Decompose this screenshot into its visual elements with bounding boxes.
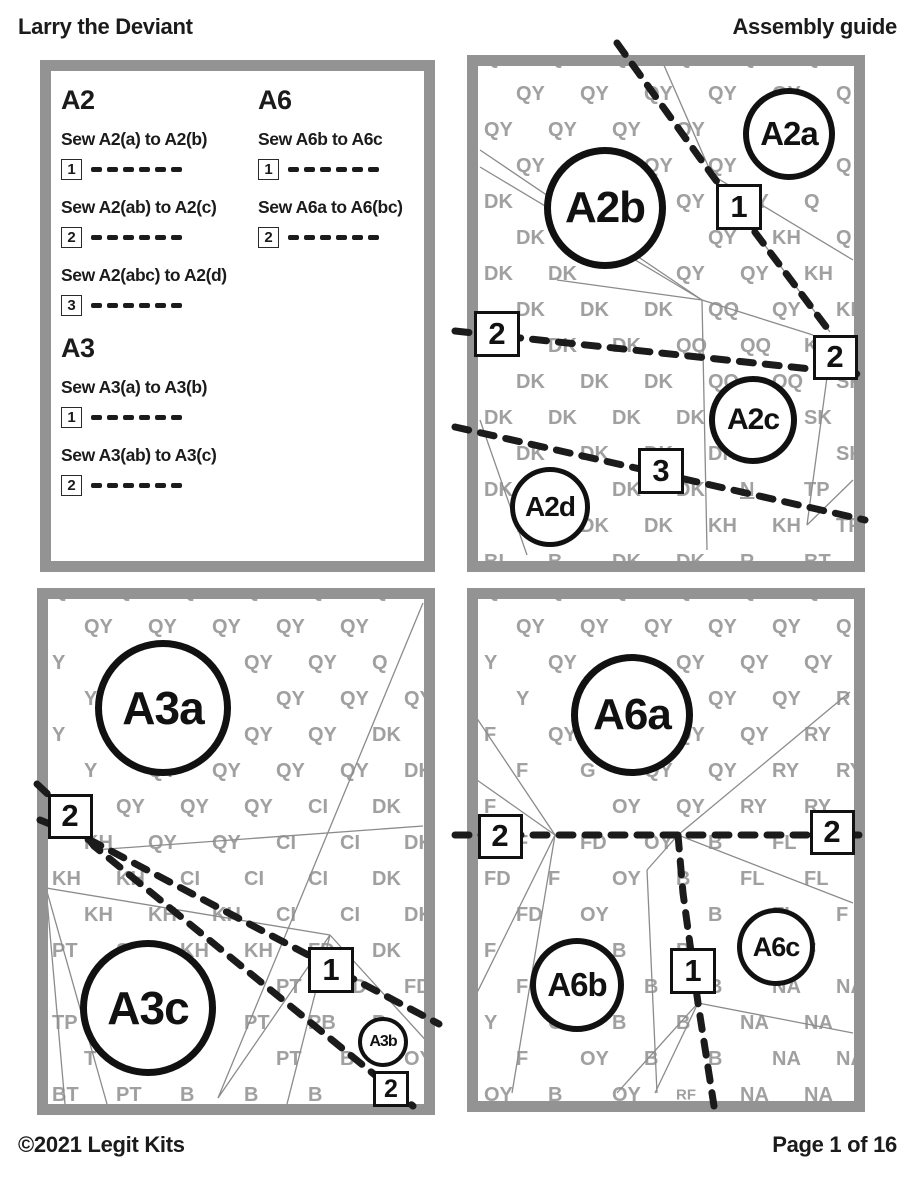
- seam-number-box-2: 2: [474, 311, 520, 357]
- piece-label-a3b: A3b: [358, 1017, 408, 1067]
- seam-number-box-2: 2: [48, 794, 93, 839]
- doc-subtitle: Assembly guide: [732, 14, 897, 40]
- step-label: Sew A6b to A6c: [258, 129, 443, 150]
- sew-line-legend: [288, 167, 379, 172]
- seam-number-box-3: 3: [638, 448, 684, 494]
- step-number-box: 2: [61, 475, 82, 496]
- piece-label-a6c: A6c: [737, 908, 815, 986]
- step-legend-row: 1: [258, 159, 443, 180]
- sew-line-legend: [91, 303, 182, 308]
- piece-label-a3c: A3c: [80, 940, 216, 1076]
- step-legend-row: 2: [61, 227, 246, 248]
- instructions-column-left: A2Sew A2(a) to A2(b)1Sew A2(ab) to A2(c)…: [61, 79, 246, 513]
- page-footer: ©2021 Legit Kits Page 1 of 16: [18, 1132, 897, 1158]
- step-legend-row: 1: [61, 159, 246, 180]
- piece-label-a3a: A3a: [95, 640, 231, 776]
- piece-label-a2a: A2a: [743, 88, 835, 180]
- diagram-panel-a3: QYQYQYQYQYQQYQYQYQYQYYQYQYQYQYQYQYQYQYYQ…: [37, 588, 435, 1115]
- piece-label-a6b: A6b: [530, 938, 624, 1032]
- diagram-labels-layer: A6aA6bA6c221: [467, 588, 843, 1090]
- section-title-a2: A2: [61, 85, 246, 116]
- sew-line-legend: [288, 235, 379, 240]
- step-legend-row: 1: [61, 407, 246, 428]
- sew-line-legend: [91, 167, 182, 172]
- step-legend-row: 3: [61, 295, 246, 316]
- piece-label-a2d: A2d: [510, 467, 590, 547]
- diagram-panel-a2: QYQYQYQYQYQQYQYQYQYQYQQYQYQYQYQQYQYQYQYQ…: [467, 55, 865, 572]
- page-header: Larry the Deviant Assembly guide: [18, 14, 897, 40]
- seam-number-box-2: 2: [478, 814, 523, 859]
- seam-number-box-2: 2: [810, 810, 855, 855]
- diagram-labels-layer: A3aA3cA3b212: [37, 588, 413, 1093]
- step-number-box: 3: [61, 295, 82, 316]
- sew-line-legend: [91, 483, 182, 488]
- step-label: Sew A3(a) to A3(b): [61, 377, 246, 398]
- section-title-a3: A3: [61, 333, 246, 364]
- instructions-column-right: A6Sew A6b to A6c1Sew A6a to A6(bc)2: [258, 79, 443, 265]
- assembly-guide-page: Larry the Deviant Assembly guide A2Sew A…: [0, 0, 917, 1178]
- seam-number-box-1: 1: [308, 947, 354, 993]
- step-number-box: 1: [258, 159, 279, 180]
- section-title-a6: A6: [258, 85, 443, 116]
- seam-number-box-1: 1: [716, 184, 762, 230]
- step-label: Sew A2(abc) to A2(d): [61, 265, 246, 286]
- step-label: Sew A2(ab) to A2(c): [61, 197, 246, 218]
- seam-number-box-1: 1: [670, 948, 716, 994]
- copyright: ©2021 Legit Kits: [18, 1132, 185, 1158]
- sew-line-legend: [91, 235, 182, 240]
- step-number-box: 1: [61, 407, 82, 428]
- step-legend-row: 2: [258, 227, 443, 248]
- diagram-panel-a6: QYQYQYQYQYQQYQYQYQYQYQYQYQYQYQYYQYQYQYRF…: [467, 588, 865, 1112]
- step-label: Sew A2(a) to A2(b): [61, 129, 246, 150]
- page-number: Page 1 of 16: [772, 1132, 897, 1158]
- doc-title: Larry the Deviant: [18, 14, 193, 40]
- seam-number-box-2: 2: [373, 1071, 409, 1107]
- step-number-box: 2: [258, 227, 279, 248]
- step-legend-row: 2: [61, 475, 246, 496]
- step-number-box: 2: [61, 227, 82, 248]
- seam-number-box-2: 2: [813, 335, 858, 380]
- piece-label-a6a: A6a: [571, 654, 693, 776]
- piece-label-a2c: A2c: [709, 376, 797, 464]
- step-label: Sew A6a to A6(bc): [258, 197, 443, 218]
- step-number-box: 1: [61, 159, 82, 180]
- step-label: Sew A3(ab) to A3(c): [61, 445, 246, 466]
- sew-line-legend: [91, 415, 182, 420]
- diagram-labels-layer: A2bA2aA2cA2d1223: [467, 55, 843, 550]
- piece-label-a2b: A2b: [544, 147, 666, 269]
- instructions-panel: A2Sew A2(a) to A2(b)1Sew A2(ab) to A2(c)…: [40, 60, 435, 572]
